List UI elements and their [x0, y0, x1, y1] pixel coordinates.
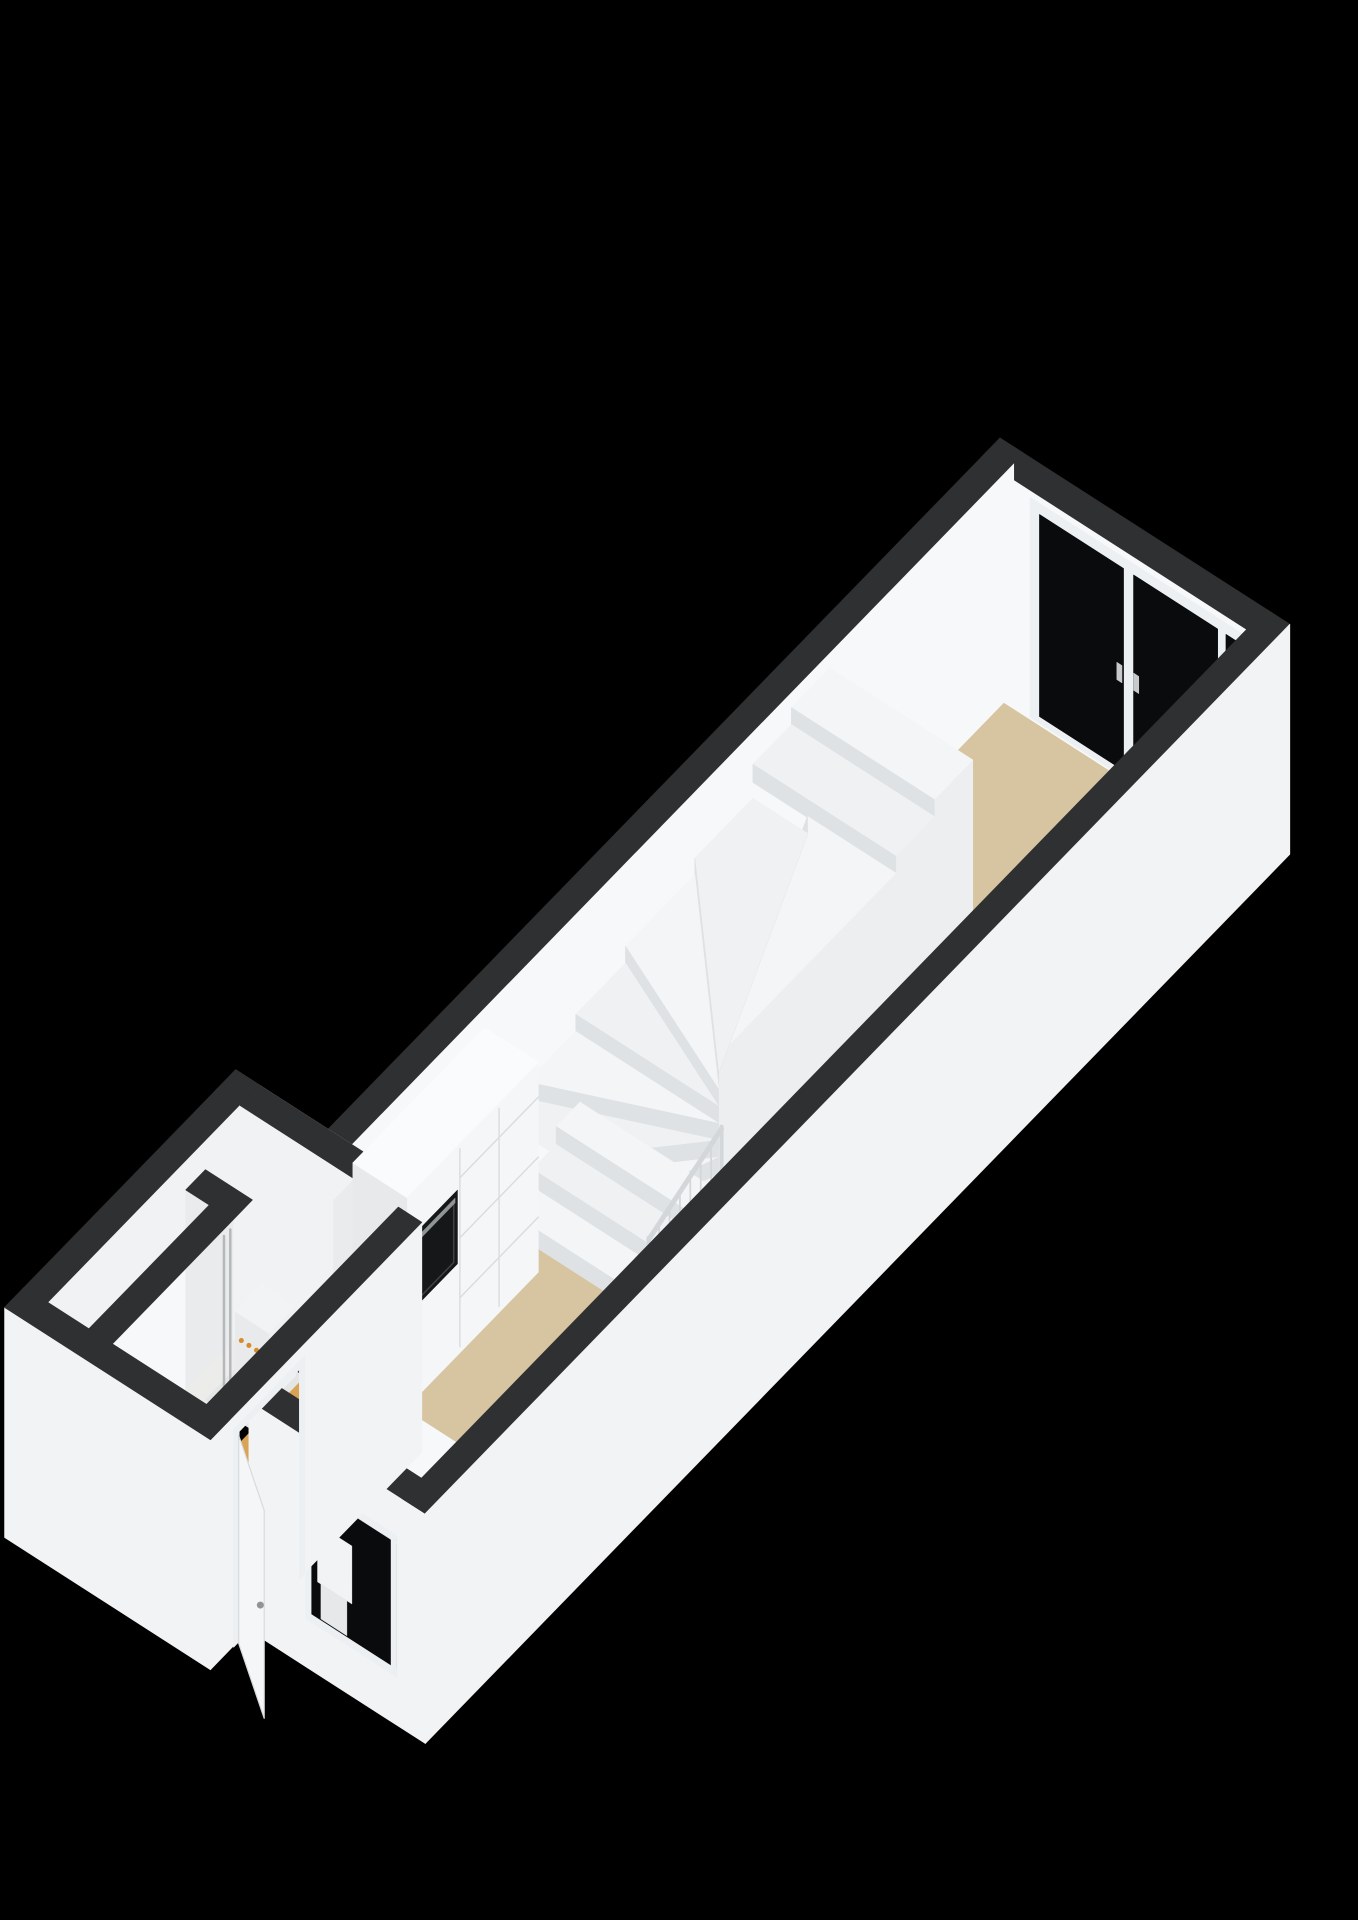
- annex-se-wall-2: [210, 1412, 237, 1669]
- floorplan-page: [0, 0, 1358, 1920]
- floorplan-3d-render: [0, 0, 1358, 1920]
- door-handle-right: [1134, 673, 1139, 693]
- door-handle-left: [1117, 662, 1122, 682]
- floorplan-figure: [0, 0, 1358, 1920]
- front-door-frame-left: [299, 1356, 305, 1580]
